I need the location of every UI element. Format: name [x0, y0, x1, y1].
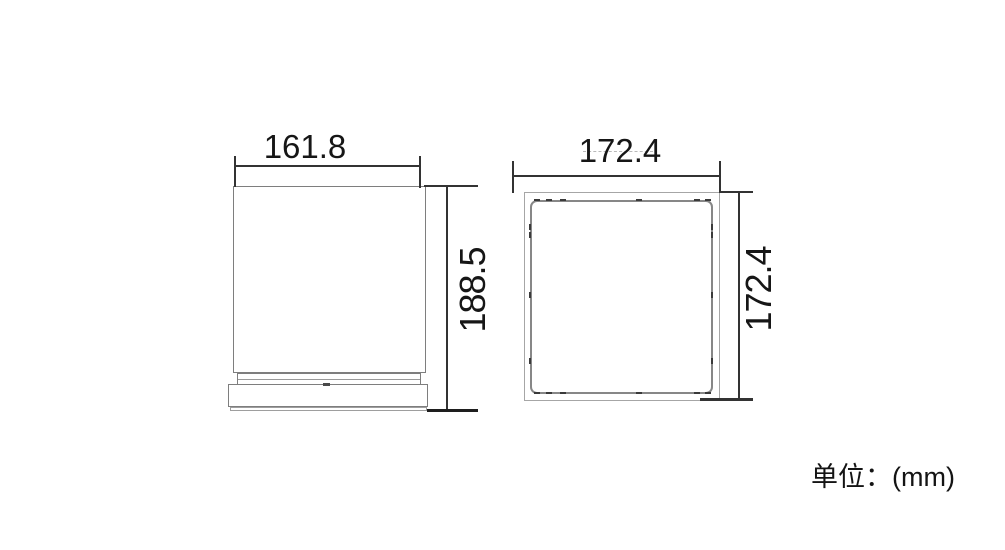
panel-registration-mark	[546, 392, 552, 394]
panel-registration-mark	[636, 392, 642, 394]
front-height-label: 188.5	[455, 210, 491, 370]
panel-registration-mark	[529, 292, 531, 298]
front-height-dim-ext-top	[424, 185, 478, 187]
panel-registration-mark	[529, 224, 531, 230]
dimension-drawing: 161.8 188.5 172.4 172.4 单位：(mm)	[0, 0, 1005, 550]
front-view-base-strip	[230, 407, 427, 411]
panel-height-label: 172.4	[741, 209, 777, 369]
panel-registration-mark	[560, 199, 566, 201]
front-height-dim-ext-bottom	[427, 409, 478, 412]
panel-view-inner	[530, 200, 713, 394]
panel-registration-mark	[529, 232, 531, 238]
front-view-base	[228, 384, 428, 407]
panel-height-dim-ext-bottom	[700, 398, 753, 401]
front-width-dim-tick-right	[419, 156, 421, 188]
front-view-center-notch	[323, 383, 330, 386]
panel-registration-mark	[636, 199, 642, 201]
panel-registration-mark	[529, 358, 531, 364]
front-view-neck-line	[238, 379, 420, 380]
panel-registration-mark	[711, 292, 713, 298]
front-width-label: 161.8	[215, 130, 395, 164]
panel-registration-mark	[534, 199, 540, 201]
panel-registration-mark	[711, 358, 713, 364]
panel-registration-mark	[705, 392, 711, 394]
panel-width-dim-line	[513, 175, 721, 177]
panel-registration-mark	[694, 199, 700, 201]
front-view-body	[233, 186, 426, 373]
front-width-dim-line	[235, 165, 421, 167]
panel-registration-mark	[546, 199, 552, 201]
panel-registration-mark	[560, 392, 566, 394]
panel-height-dim-ext-top	[721, 191, 753, 193]
panel-width-dim-tick-right	[719, 161, 721, 193]
unit-label: 单位：(mm)	[811, 461, 955, 493]
panel-registration-mark	[711, 232, 713, 238]
panel-registration-mark	[705, 199, 711, 201]
panel-width-dim-tick-left	[512, 161, 514, 193]
panel-registration-mark	[694, 392, 700, 394]
panel-width-label: 172.4	[530, 134, 710, 168]
front-height-dim-line	[446, 186, 448, 411]
panel-registration-mark	[534, 392, 540, 394]
panel-registration-mark	[711, 224, 713, 230]
